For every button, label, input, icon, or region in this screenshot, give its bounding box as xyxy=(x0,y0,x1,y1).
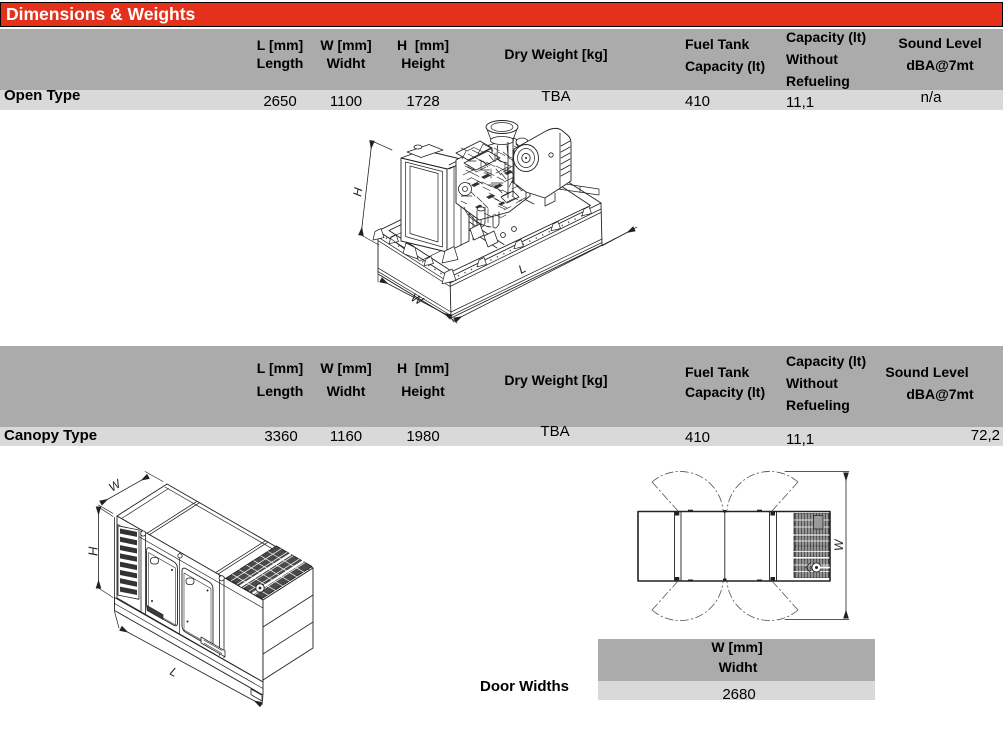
svg-text:L: L xyxy=(516,261,528,277)
svg-text:W: W xyxy=(832,538,846,551)
svg-text:L: L xyxy=(168,664,181,679)
svg-text:H: H xyxy=(86,546,101,556)
svg-text:H: H xyxy=(350,186,365,197)
svg-text:W: W xyxy=(106,476,124,495)
